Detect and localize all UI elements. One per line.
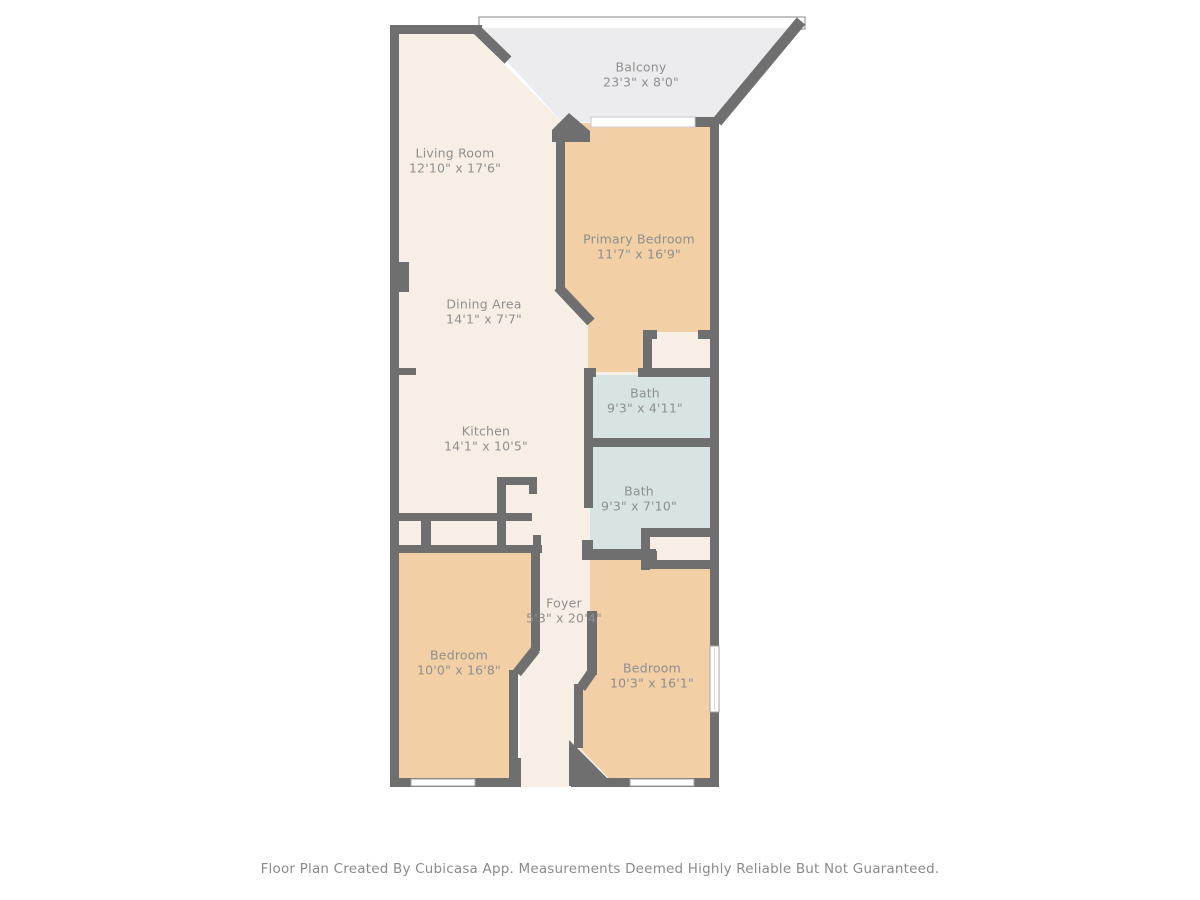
- bath-upper-floor: [590, 375, 718, 442]
- kitchen-bottom-wall: [390, 513, 532, 521]
- wall-pilaster-upper: [399, 262, 409, 292]
- floor-plan-page: Balcony23'3" x 8'0"Living Room12'10" x 1…: [0, 0, 1200, 900]
- bedroom-left-top-wall: [390, 545, 542, 553]
- bedroom-left-right-wall-lower: [509, 670, 518, 782]
- bath-upper-top-stub-right: [638, 368, 719, 377]
- window-bedroom-right-bottom: [630, 779, 694, 786]
- bedroom-right-top-wall-2: [641, 560, 719, 569]
- bedroom-right-left-wall-upper: [587, 611, 597, 675]
- outer-wall-right-lower: [710, 710, 719, 787]
- closet-a-top-stub-left: [643, 330, 657, 339]
- balcony-railing: [479, 17, 805, 29]
- bath-upper-left-wall: [584, 368, 593, 442]
- bedroom-right-left-wall-lower: [574, 684, 583, 748]
- pantry-top-cap: [529, 477, 537, 494]
- wall-stub-left: [399, 368, 416, 375]
- bedroom-right-floor: [578, 560, 716, 782]
- floors: [398, 17, 805, 787]
- footer-disclaimer: Floor Plan Created By Cubicasa App. Meas…: [261, 861, 940, 877]
- closet-a-top-stub-right: [698, 330, 719, 339]
- outer-wall-right-upper: [710, 118, 719, 650]
- kitchen-wall-stub: [421, 521, 431, 547]
- bedroom-right-top-wall: [582, 551, 657, 560]
- bath-lower-left-wall: [584, 438, 593, 508]
- floor-plan-drawing: [0, 0, 1200, 900]
- balcony-sliding-door: [591, 117, 695, 127]
- window-bedroom-left-bottom: [411, 779, 475, 786]
- outer-wall-top: [390, 25, 482, 34]
- bedroom-left-right-wall-upper: [531, 545, 540, 651]
- bath-separator-wall: [584, 438, 719, 447]
- outer-wall-left: [390, 25, 399, 787]
- primary-bedroom-left-wall: [556, 138, 565, 290]
- closet-b-top-wall: [641, 528, 719, 537]
- pantry-left-wall: [497, 477, 506, 553]
